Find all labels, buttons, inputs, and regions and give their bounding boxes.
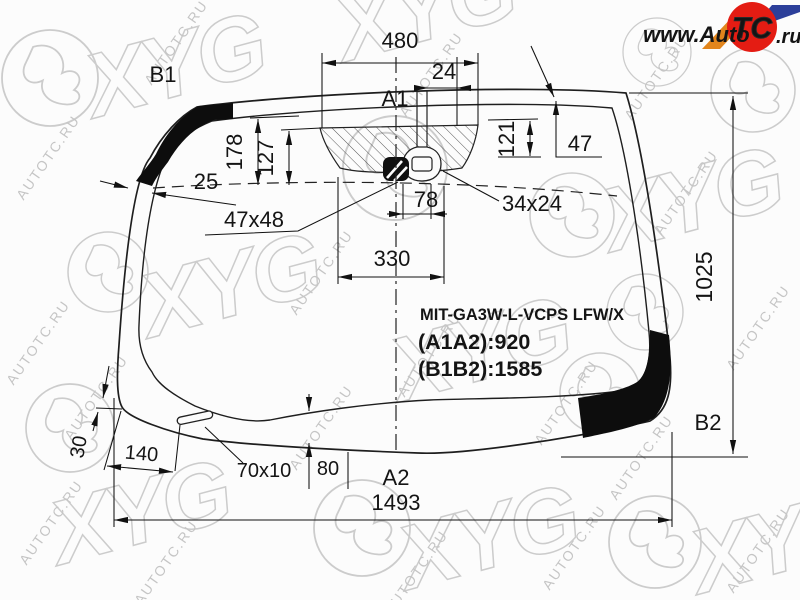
dimension-25: 25: [100, 169, 236, 205]
autotc-watermark: AUTOTC.RU: [61, 352, 131, 443]
part-a1a2-length: (A1A2):920: [418, 330, 530, 354]
dim-140-label: 140: [124, 442, 159, 467]
part-number: MIT-GA3W-L-VCPS LFW/X: [420, 306, 624, 324]
autotc-watermark: AUTOTC.RU: [3, 297, 73, 388]
dim-47-label: 47: [568, 131, 592, 156]
autotc-site-logo: TC www.Auto .ru: [643, 2, 800, 52]
dim-178-label: 178: [222, 134, 247, 171]
logo-www-text: www.Auto: [643, 22, 750, 47]
dim-1025-label: 1025: [691, 251, 717, 302]
dim-80-label: 80: [317, 458, 339, 480]
dim-480-label: 480: [382, 28, 419, 53]
dim-127-label: 127: [253, 140, 278, 177]
xyg-emblem-icon: [711, 48, 795, 132]
dim-30-label: 30: [66, 434, 92, 460]
dim-330-label: 330: [374, 246, 411, 271]
part-b1b2-length: (B1B2):1585: [418, 357, 542, 381]
dimension-127: 127: [253, 128, 321, 185]
label-a2: A2: [383, 465, 410, 490]
label-b2: B2: [695, 410, 722, 435]
dim-1493-label: 1493: [372, 490, 421, 515]
technical-drawing: XYG XYG XYG XYG XYG XYG XYG XYG AUTOTC.R…: [0, 0, 800, 600]
mount-bracket: [412, 157, 432, 171]
dimension-47: 47: [556, 101, 602, 157]
dim-25-label: 25: [194, 169, 218, 194]
dim-24-label: 24: [432, 59, 456, 84]
label-a1: A1: [382, 86, 409, 111]
wiper-slot: [177, 410, 214, 425]
windshield-drawing-canvas: XYG XYG XYG XYG XYG XYG XYG XYG AUTOTC.R…: [0, 0, 800, 600]
dim-47x48-label: 47x48: [224, 207, 284, 232]
logo-ru-text: .ru: [776, 26, 800, 48]
dim-121-label: 121: [494, 121, 519, 158]
dim-78-label: 78: [414, 187, 438, 212]
dimension-121: 121: [488, 119, 541, 157]
dimension-78: 78: [387, 184, 447, 219]
dim-70x10-label: 70x10: [237, 460, 292, 482]
label-b1: B1: [150, 62, 177, 87]
xyg-watermark: XYG: [124, 214, 331, 359]
callout-34x24: 34x24: [443, 171, 562, 216]
dim-34x24-label: 34x24: [502, 191, 562, 216]
